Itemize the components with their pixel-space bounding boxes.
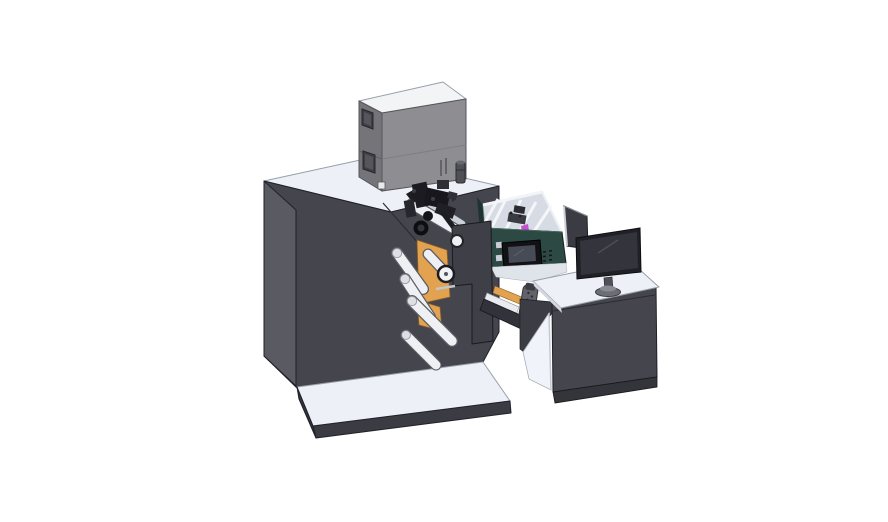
roller-end-cap <box>392 248 401 257</box>
enclosure-front-face <box>382 99 466 191</box>
roller-ring-hub <box>444 272 448 276</box>
printhead-screw <box>412 189 416 193</box>
monitor-stand-base-top <box>600 286 616 292</box>
feeder-clamp-knob <box>510 212 513 215</box>
enclosure-latch <box>378 182 385 189</box>
feeder-clamp-knob <box>519 215 522 218</box>
printhead-gear-hub <box>418 225 425 232</box>
operator-desk <box>520 261 659 403</box>
printhead-block <box>437 180 449 189</box>
enclosure-knob-cap <box>456 161 465 165</box>
feeder-hinge <box>496 242 502 248</box>
cabinet-left-face <box>264 181 296 386</box>
roller-end-cap <box>407 296 416 305</box>
enclosure-knob <box>456 162 465 183</box>
feeder-hinge <box>496 255 502 261</box>
machine-isometric-render <box>0 0 888 522</box>
printhead-screw <box>431 197 435 201</box>
roller-end-cap <box>400 274 409 283</box>
guard-plate-roller-end <box>451 235 463 247</box>
hmi-screen <box>508 245 536 263</box>
roller-end-cap <box>402 331 411 340</box>
printhead-roller-dark <box>423 211 433 221</box>
top-enclosure <box>359 82 466 191</box>
cad-render-canvas <box>0 0 888 522</box>
